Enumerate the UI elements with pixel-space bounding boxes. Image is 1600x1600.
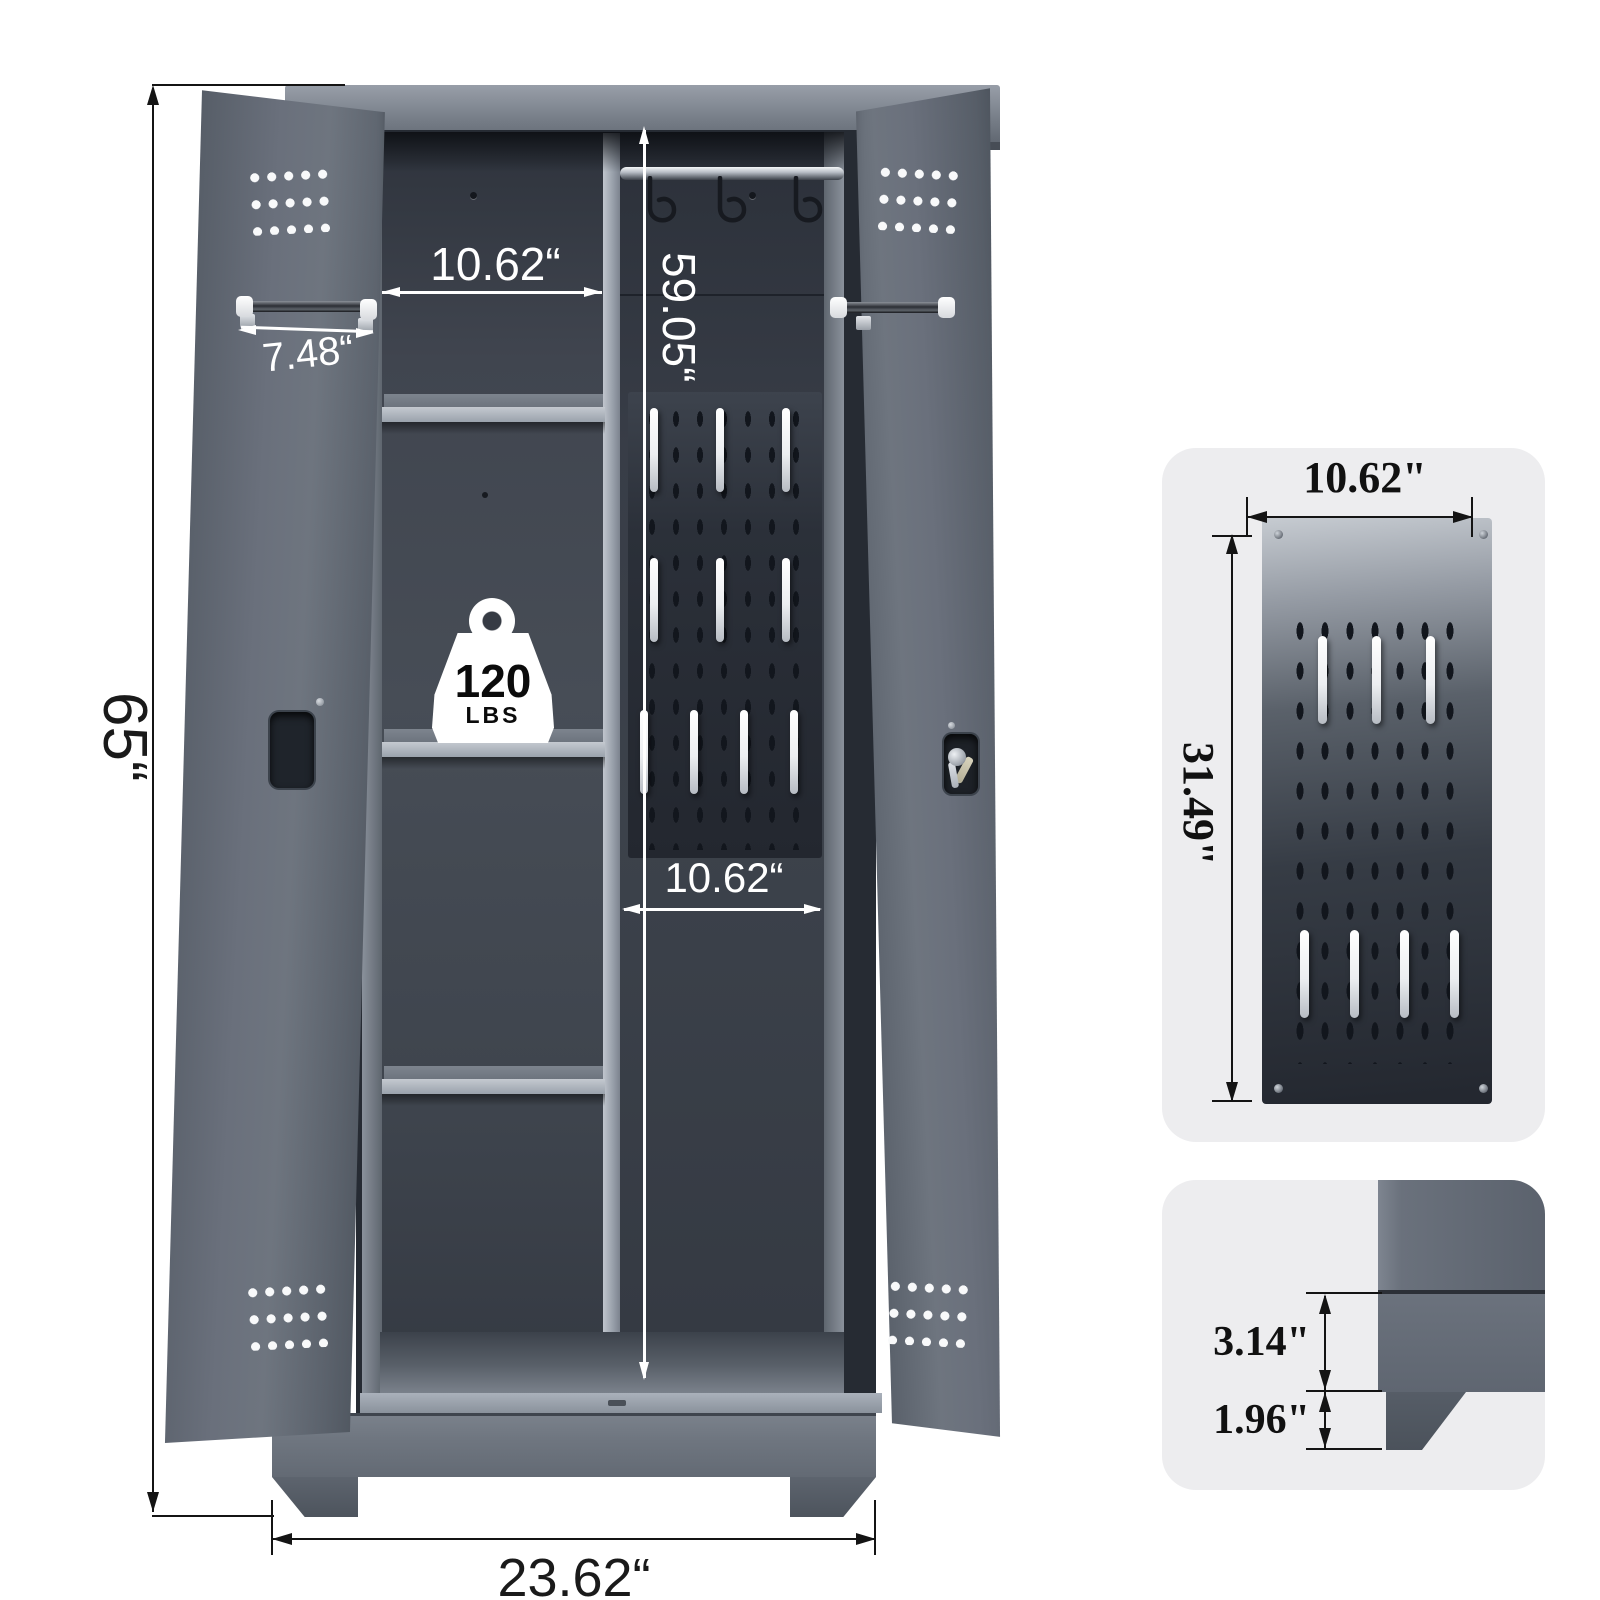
arrow-left-icon bbox=[272, 1533, 292, 1545]
dim-line-hanging-width bbox=[624, 908, 820, 911]
peg-hook bbox=[1300, 930, 1309, 1018]
cabinet-leg-right bbox=[790, 1477, 876, 1517]
panel-screw bbox=[1479, 1084, 1488, 1093]
peg-hook bbox=[716, 558, 724, 642]
panel-screw bbox=[1479, 530, 1488, 539]
left-door-keyhole bbox=[316, 698, 324, 706]
dim-line-inset-peg-height bbox=[1231, 536, 1233, 1102]
shelf-shadow bbox=[382, 422, 605, 434]
peg-hook bbox=[740, 710, 748, 794]
shelf-front-edge bbox=[382, 742, 605, 757]
arrow-down-icon bbox=[1226, 1082, 1238, 1102]
arrow-right-icon bbox=[1453, 511, 1473, 523]
peg-hook bbox=[690, 710, 698, 794]
peg-hook bbox=[1350, 930, 1359, 1018]
inset-leg-height-label: 1.96" bbox=[1180, 1396, 1310, 1444]
base-inset-card: 3.14" 1.96" bbox=[1162, 1180, 1545, 1490]
shelf-front-edge bbox=[382, 1079, 605, 1094]
dim-line-overall-width bbox=[272, 1538, 876, 1540]
peg-hook bbox=[782, 408, 790, 492]
center-divider bbox=[603, 133, 620, 1393]
peg-hook bbox=[782, 558, 790, 642]
arrow-left-icon bbox=[238, 325, 256, 335]
inset-door-panel bbox=[1378, 1180, 1545, 1290]
dim-line-left-compartment-width bbox=[382, 291, 602, 294]
arrow-down-icon bbox=[639, 1362, 649, 1380]
shelf-top-surface bbox=[384, 394, 603, 407]
cabinet-leg-left bbox=[272, 1477, 358, 1517]
dim-left-compartment-width-label: 10.62“ bbox=[398, 237, 593, 291]
dim-line-inset-peg-width bbox=[1247, 516, 1473, 518]
dim-ext bbox=[1306, 1390, 1382, 1392]
right-door-keyhole bbox=[948, 722, 955, 729]
arrow-right-icon bbox=[856, 1533, 876, 1545]
right-door-handle-endcap bbox=[830, 297, 847, 318]
base-plinth bbox=[272, 1413, 876, 1477]
dim-ext-top bbox=[152, 84, 345, 86]
arrow-down-icon bbox=[1319, 1428, 1331, 1448]
peg-hook bbox=[790, 710, 798, 794]
inset-base-panel bbox=[1378, 1294, 1545, 1392]
rod-s-hooks-icon bbox=[628, 176, 838, 238]
left-door-handle-endcap bbox=[236, 296, 253, 317]
arrow-up-icon bbox=[639, 126, 649, 144]
arrow-down-icon bbox=[147, 1492, 159, 1512]
peg-hook bbox=[1372, 636, 1381, 724]
dim-line-overall-height bbox=[152, 88, 154, 1512]
dim-overall-height-label: 65“ bbox=[89, 692, 160, 782]
dim-ext bbox=[1306, 1292, 1382, 1294]
panel-screw bbox=[1274, 530, 1283, 539]
left-door-vent-top bbox=[246, 166, 331, 236]
right-door-handle-bar bbox=[842, 302, 946, 313]
arrow-up-icon bbox=[1226, 534, 1238, 554]
right-door-handle-endcap bbox=[938, 297, 955, 318]
peg-hook bbox=[1318, 636, 1327, 724]
arrow-up-icon bbox=[1319, 1294, 1331, 1314]
right-door-vent-bottom bbox=[884, 1278, 969, 1348]
inset-plinth-height-label: 3.14" bbox=[1180, 1318, 1310, 1366]
panel-screw bbox=[1274, 1084, 1283, 1093]
dim-overall-width-label: 23.62“ bbox=[414, 1547, 734, 1600]
dim-tick bbox=[1471, 497, 1473, 537]
dim-hanging-width-label: 10.62“ bbox=[638, 854, 810, 902]
right-door-handle-bracket bbox=[856, 316, 871, 330]
left-door-handle-pocket bbox=[270, 712, 314, 788]
right-door-vent-top bbox=[874, 164, 959, 234]
shelf-shadow bbox=[382, 1094, 605, 1106]
arrow-left-icon bbox=[1247, 511, 1267, 523]
peg-hook bbox=[650, 558, 658, 642]
inset-pegboard-width-label: 10.62" bbox=[1280, 452, 1450, 503]
peg-hook bbox=[1426, 636, 1435, 724]
peg-hook bbox=[1450, 930, 1459, 1018]
arrow-right-icon bbox=[804, 904, 822, 914]
left-door-handle-bar bbox=[248, 301, 368, 312]
left-door-handle-endcap bbox=[360, 299, 377, 320]
dim-tick bbox=[874, 1500, 876, 1555]
floor-lip-notch bbox=[608, 1400, 626, 1406]
dim-tick bbox=[1212, 535, 1252, 537]
inset-leg bbox=[1386, 1392, 1466, 1450]
weight-unit: LBS bbox=[466, 703, 521, 727]
inset-pegboard-height-label: 31.49" bbox=[1173, 742, 1224, 865]
shelf-front-edge bbox=[382, 407, 605, 422]
dim-line-hanging-height bbox=[643, 130, 646, 1378]
peg-hook bbox=[650, 408, 658, 492]
dim-hanging-height-label: 59.05“ bbox=[652, 252, 706, 382]
dim-ext bbox=[1306, 1448, 1382, 1450]
interior-top-shadow bbox=[382, 132, 844, 172]
arrow-up-icon bbox=[147, 85, 159, 105]
shelf-top-surface bbox=[384, 1066, 603, 1079]
arrow-up-icon bbox=[1319, 1392, 1331, 1412]
dim-tick bbox=[1246, 497, 1248, 537]
arrow-down-icon bbox=[1319, 1370, 1331, 1390]
interior-floor bbox=[380, 1332, 844, 1393]
lock-cylinder bbox=[948, 748, 966, 766]
back-panel-seam bbox=[620, 294, 824, 296]
dim-tick bbox=[1212, 1100, 1252, 1102]
dim-ext-bottom bbox=[152, 1515, 274, 1517]
back-screw bbox=[470, 192, 477, 199]
peg-hook bbox=[716, 408, 724, 492]
back-screw bbox=[482, 492, 488, 498]
product-dimension-diagram: 120 LBS 10.62“ 59.05“ 7.48“ 10.62“ 65“ 2… bbox=[0, 0, 1600, 1600]
arrow-left-icon bbox=[622, 904, 640, 914]
weight-value: 120 bbox=[455, 659, 532, 703]
peg-hook bbox=[1400, 930, 1409, 1018]
left-door-vent-bottom bbox=[244, 1281, 329, 1351]
shelf-shadow bbox=[382, 757, 605, 769]
cabinet-right-wall bbox=[824, 132, 844, 1393]
dim-tick bbox=[271, 1500, 273, 1555]
